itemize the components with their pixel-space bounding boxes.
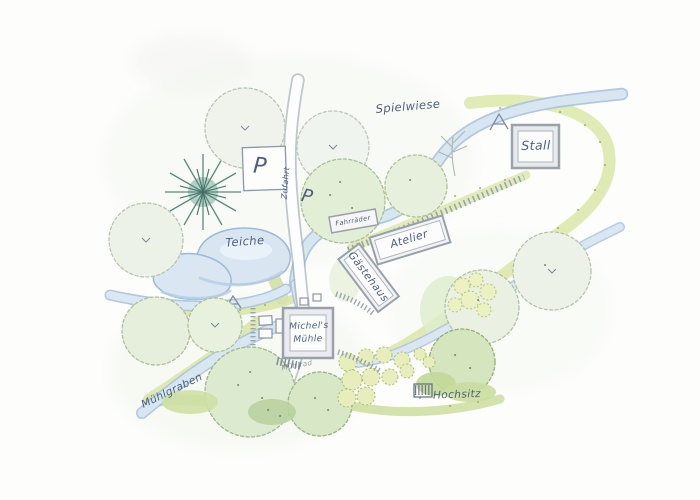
tree <box>109 203 183 277</box>
tree <box>513 232 591 310</box>
site-plan-map: Spielwiese Stall P P Zufahrt Teiche Fahr… <box>0 0 700 500</box>
label-muehle-line1: Michel's <box>289 322 329 332</box>
outbuilding <box>300 298 308 305</box>
muehle-building <box>283 308 333 358</box>
map-drawing <box>0 0 700 500</box>
hedge-bush <box>248 399 296 425</box>
outbuilding <box>313 294 321 301</box>
label-stall: Stall <box>521 139 551 152</box>
outbuilding <box>259 316 272 326</box>
label-teiche: Teiche <box>225 235 265 249</box>
label-parking-north: P <box>252 156 267 179</box>
tree <box>122 297 190 365</box>
label-muehle-line2: Mühle <box>293 335 323 345</box>
tree <box>385 155 447 217</box>
outbuilding <box>259 329 272 338</box>
tree <box>188 298 242 352</box>
label-hochsitz: Hochsitz <box>433 389 481 401</box>
